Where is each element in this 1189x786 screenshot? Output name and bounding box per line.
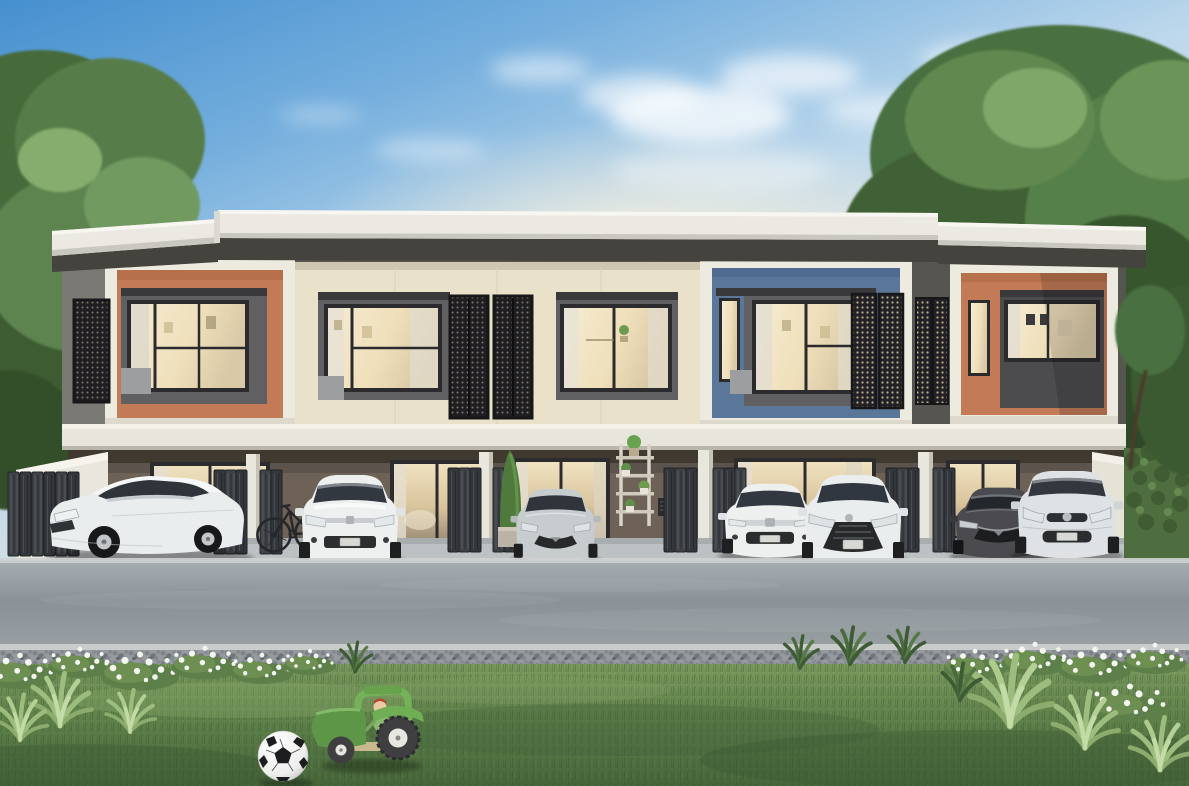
unit-4-window bbox=[752, 300, 862, 394]
unit-1-orange bbox=[105, 258, 295, 428]
rendered-photo bbox=[0, 0, 1189, 786]
mesh-screens-gap bbox=[916, 298, 948, 404]
toy-rear-wheel bbox=[377, 717, 419, 759]
gate-divider-4b bbox=[933, 468, 955, 552]
gate-divider-3 bbox=[664, 468, 697, 552]
unit-4-narrow-window bbox=[719, 298, 740, 382]
unit-3-window bbox=[556, 292, 678, 400]
unit-4-blue bbox=[700, 256, 912, 430]
unit-5-orange bbox=[950, 262, 1118, 426]
toy-front-wheel bbox=[328, 737, 355, 764]
mesh-screen-left-end bbox=[74, 300, 109, 402]
gate-divider-2 bbox=[448, 468, 481, 552]
units-2-3-cream-facade bbox=[293, 262, 700, 428]
unit-2-window bbox=[318, 292, 450, 400]
unit-5-narrow-window bbox=[968, 300, 990, 376]
townhouse-scene bbox=[0, 0, 1189, 786]
